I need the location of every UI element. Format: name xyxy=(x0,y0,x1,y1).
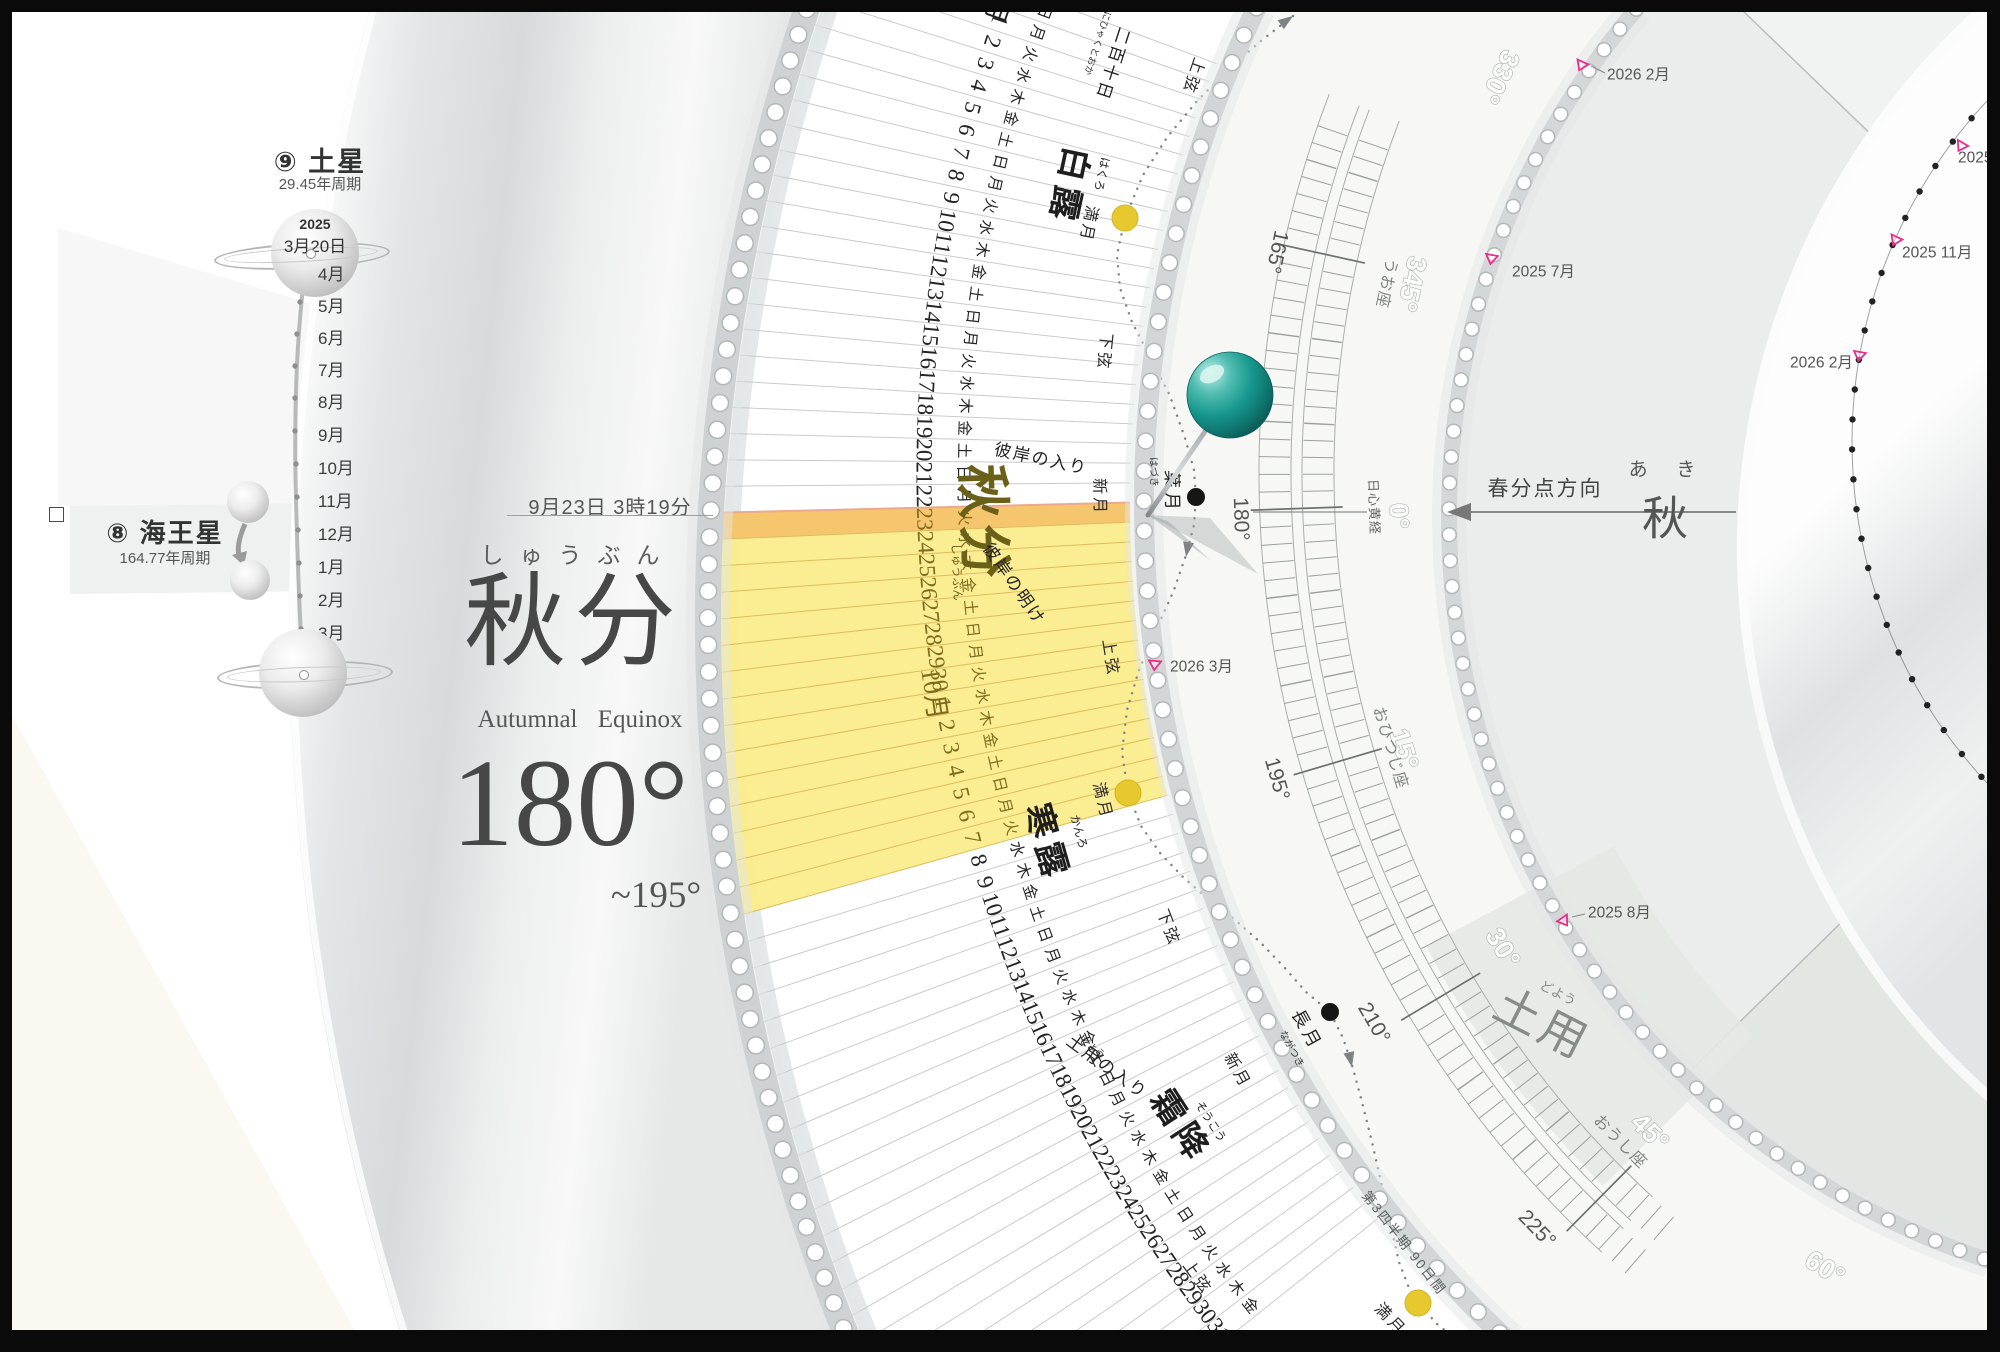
track-month-label: 2025 8月 xyxy=(1588,905,1651,922)
registration-square xyxy=(49,507,64,522)
saturn-month: 4月 xyxy=(318,260,344,285)
date-weekday: 水 xyxy=(957,375,976,392)
equinox-degree: 180° xyxy=(360,742,780,867)
saturn-month: 12月 xyxy=(318,520,354,545)
date-number: 11 xyxy=(929,230,957,256)
neptune-badge: ⑧ xyxy=(106,518,130,548)
full-moon-dot xyxy=(1115,780,1141,806)
saturn-month: 8月 xyxy=(318,388,344,413)
sun-longitude-label: 180° xyxy=(1229,497,1254,541)
lunar-month-furigana: はづき xyxy=(1147,457,1160,487)
date-number: 19 xyxy=(912,415,938,439)
vernal-direction-label: 春分点方向 xyxy=(1488,478,1603,501)
neptune-name: 海王星 xyxy=(140,518,224,548)
saturn-position-dot xyxy=(306,249,316,259)
neptune-sphere-start xyxy=(227,481,269,523)
date-weekday: 月 xyxy=(960,330,978,347)
saturn-month: 7月 xyxy=(318,356,344,381)
neptune-sphere-end xyxy=(230,560,270,600)
new-moon-dot xyxy=(1321,1003,1339,1021)
date-number: 20 xyxy=(912,438,937,461)
date-weekday: 金 xyxy=(955,420,974,437)
date-weekday: 日 xyxy=(963,621,982,638)
saturn-date-year: 2025 xyxy=(271,216,359,232)
track-month-label: 2025 11月 xyxy=(1902,245,1972,262)
neptune-period: 164.77年周期 xyxy=(85,547,245,568)
date-number: 16 xyxy=(915,345,942,370)
full-moon-dot xyxy=(1405,1290,1431,1316)
date-weekday: 火 xyxy=(959,353,977,370)
saturn-month: 9月 xyxy=(318,421,344,446)
saturn2-position-dot xyxy=(299,670,309,680)
season-label: 秋 xyxy=(1642,494,1688,545)
date-weekday: 土 xyxy=(955,443,973,459)
helio-axis-label: 日心黄経 xyxy=(1366,479,1383,536)
saturn-month: 11月 xyxy=(318,487,353,512)
date-number: 24 xyxy=(913,530,939,555)
date-number: 21 xyxy=(912,462,937,485)
date-weekday: 木 xyxy=(956,398,975,415)
date-number: 18 xyxy=(913,392,939,416)
equinox-furigana: しゅうぶん xyxy=(428,536,728,570)
date-number: 26 xyxy=(915,576,942,601)
date-number: 28 xyxy=(920,621,947,647)
equinox-english: Autumnal Equinox xyxy=(380,706,780,734)
pin-ball xyxy=(1187,352,1273,438)
date-number: 22 xyxy=(912,484,937,507)
date-number: 25 xyxy=(914,553,940,578)
helio-compass-poster: 165°180°195°210°225°31日1月2火3水4木5金6土7日8月9… xyxy=(0,0,2000,1352)
date-number: 12 xyxy=(925,253,953,279)
date-weekday: 日 xyxy=(963,308,982,325)
datetime-underline xyxy=(507,515,713,516)
date-weekday: 土 xyxy=(960,599,979,616)
saturn-month: 10月 xyxy=(318,454,354,479)
saturn-month: 2月 xyxy=(318,586,344,611)
equinox-title: 秋分 xyxy=(374,568,774,680)
moon-phase-label: 新月 xyxy=(1090,478,1109,516)
track-month-label: 2026 2月 xyxy=(1607,67,1670,84)
date-weekday: 土 xyxy=(965,285,985,303)
date-number: 13 xyxy=(922,276,950,302)
date-number: 27 xyxy=(917,599,944,624)
saturn-period: 29.45年周期 xyxy=(230,173,410,194)
date-weekday: 金 xyxy=(968,263,988,281)
new-moon-dot xyxy=(1187,488,1205,506)
date-weekday: 火 xyxy=(980,196,1000,215)
date-number: 14 xyxy=(920,299,948,325)
full-moon-dot xyxy=(1112,205,1138,231)
date-weekday: 火 xyxy=(968,665,987,683)
saturn-month: 1月 xyxy=(318,553,344,578)
neptune-label: ⑧ 海王星 xyxy=(85,513,245,550)
date-weekday: 月 xyxy=(965,643,984,661)
helio-degree-label: 0° xyxy=(1384,503,1415,530)
date-number: 17 xyxy=(914,368,940,393)
date-number: 15 xyxy=(917,322,944,347)
saturn-month: 6月 xyxy=(318,324,344,349)
track-month-label: 2025 7月 xyxy=(1512,264,1575,281)
equinox-degree-range: ~195° xyxy=(556,874,756,917)
track-month-label: 2026 3月 xyxy=(1170,659,1233,676)
season-furigana: あ き xyxy=(1629,460,1708,481)
solar-term-furigana: しゅうぶん xyxy=(949,543,964,601)
saturn-month: 5月 xyxy=(318,292,344,317)
date-number: 23 xyxy=(912,507,938,531)
track-month-label: 2026 2月 xyxy=(1790,355,1853,372)
